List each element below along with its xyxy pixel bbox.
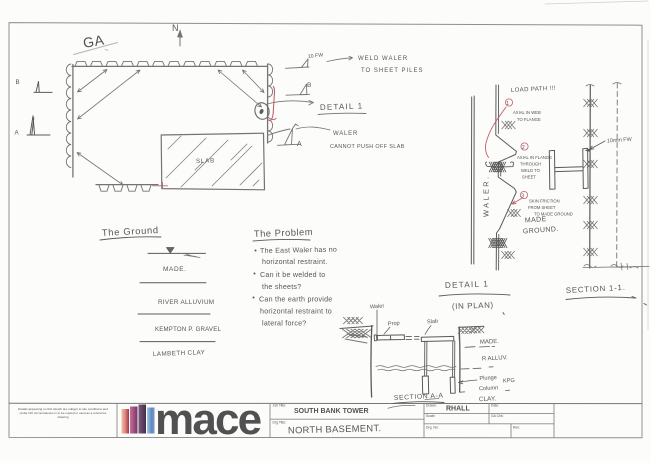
svg-text:Waler: Waler: [370, 303, 385, 310]
svg-text:TO SHEET PILES: TO SHEET PILES: [361, 68, 423, 74]
svg-text:lateral force?: lateral force?: [262, 320, 307, 328]
svg-text:1: 1: [506, 101, 509, 107]
svg-text:RIVER ALLUVIUM: RIVER ALLUVIUM: [158, 299, 214, 306]
svg-text:Prop: Prop: [388, 321, 400, 328]
svg-text:A: A: [297, 141, 302, 148]
svg-text:SOUTH BANK TOWER: SOUTH BANK TOWER: [294, 408, 369, 415]
svg-text:The East Waler has no: The East Waler has no: [260, 246, 337, 255]
svg-text:DETAIL 1: DETAIL 1: [445, 279, 489, 290]
svg-text:CANNOT PUSH OFF SLAB: CANNOT PUSH OFF SLAB: [330, 144, 405, 150]
svg-text:RHALL: RHALL: [446, 406, 470, 413]
svg-text:Drg Title:: Drg Title:: [273, 421, 287, 425]
svg-text:SKIN FRICTION: SKIN FRICTION: [529, 199, 560, 204]
svg-text:AXIAL IN WEB: AXIAL IN WEB: [513, 110, 541, 115]
svg-text:Plunge: Plunge: [479, 375, 497, 382]
svg-text:MADE.: MADE.: [480, 339, 500, 346]
svg-text:Drawn:: Drawn:: [426, 403, 437, 407]
svg-text:THROUGH: THROUGH: [520, 162, 541, 167]
svg-text:SHEET: SHEET: [522, 175, 536, 180]
svg-text:2: 2: [522, 145, 525, 151]
svg-text:AXIAL IN FLANGE: AXIAL IN FLANGE: [517, 155, 552, 160]
svg-text:MADE.: MADE.: [163, 266, 187, 273]
svg-text:GA Chk:: GA Chk:: [491, 414, 504, 418]
svg-text:B: B: [16, 79, 20, 86]
svg-text:Can it be welded to: Can it be welded to: [260, 271, 325, 279]
svg-text:Scale:: Scale:: [426, 414, 435, 418]
svg-text:TO FLANGE: TO FLANGE: [517, 117, 541, 122]
svg-text:N: N: [172, 23, 179, 33]
svg-text:Drg. No:: Drg. No:: [426, 425, 439, 429]
svg-text:FROM SHEET: FROM SHEET: [528, 205, 556, 210]
svg-text:WALER: WALER: [333, 131, 358, 137]
svg-text:drawing: drawing: [58, 415, 69, 419]
svg-text:B: B: [307, 82, 311, 89]
svg-text:Rev:: Rev:: [513, 425, 520, 429]
svg-text:WELD TO: WELD TO: [521, 168, 541, 173]
svg-text:Column: Column: [479, 385, 499, 392]
svg-text:WELD WALER: WELD WALER: [358, 56, 408, 62]
svg-text:WALER.: WALER.: [482, 175, 491, 217]
svg-text:horizontal restraint.: horizontal restraint.: [262, 258, 328, 266]
svg-text:SLAB: SLAB: [196, 157, 215, 165]
svg-text:KPG: KPG: [503, 378, 515, 385]
svg-text:The Problem: The Problem: [254, 226, 314, 239]
svg-text:the sheets?: the sheets?: [262, 283, 301, 291]
svg-text:CLAY.: CLAY.: [479, 395, 497, 403]
svg-text:Slab: Slab: [427, 319, 439, 326]
svg-text:Can the earth provide: Can the earth provide: [259, 296, 332, 304]
svg-text:Job Title:: Job Title:: [273, 404, 287, 408]
svg-text:KEMPTON P. GRAVEL: KEMPTON P. GRAVEL: [155, 326, 221, 333]
svg-text:mace: mace: [155, 395, 261, 444]
svg-text:(IN PLAN): (IN PLAN): [452, 301, 494, 311]
svg-text:Date:: Date:: [491, 403, 499, 407]
svg-text:DETAIL 1: DETAIL 1: [320, 101, 364, 112]
svg-text:horizontal restraint to: horizontal restraint to: [260, 308, 332, 316]
